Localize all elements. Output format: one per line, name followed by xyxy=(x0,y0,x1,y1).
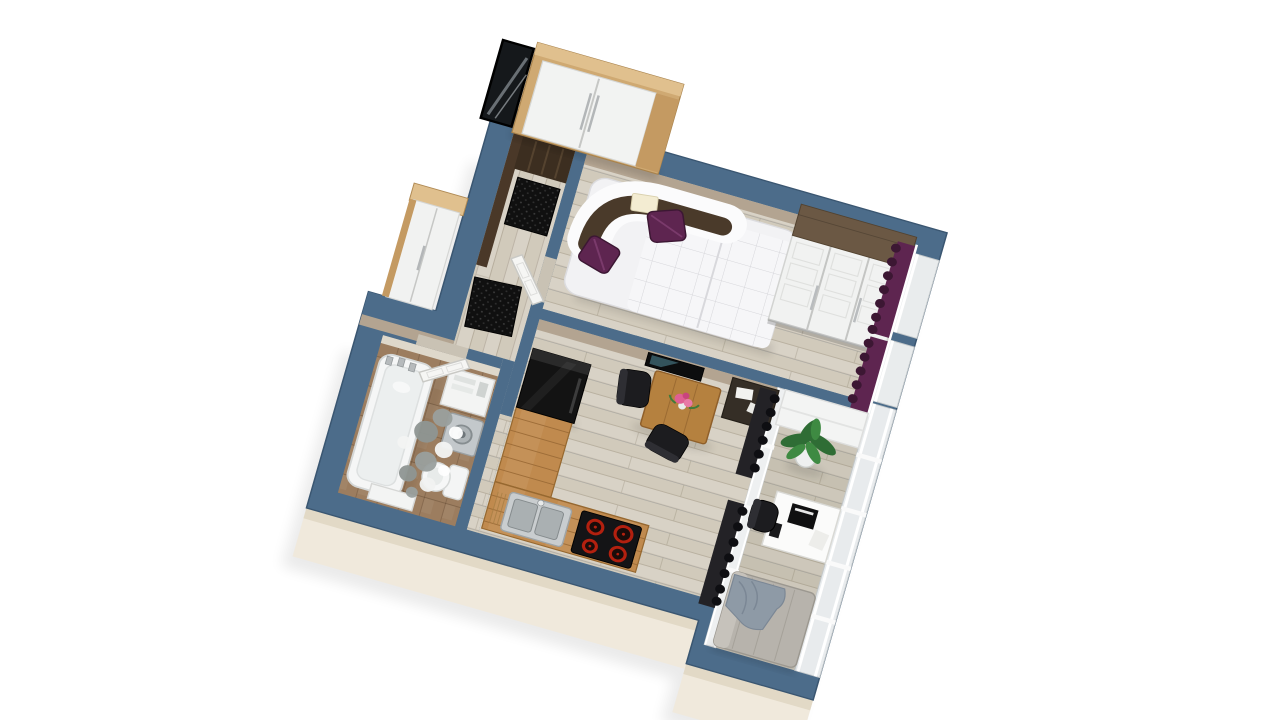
dining-chair xyxy=(616,368,652,409)
floor-plan-canvas xyxy=(0,0,1280,720)
apartment xyxy=(269,14,966,720)
purple-pillow xyxy=(647,209,687,242)
doormat xyxy=(465,277,522,337)
